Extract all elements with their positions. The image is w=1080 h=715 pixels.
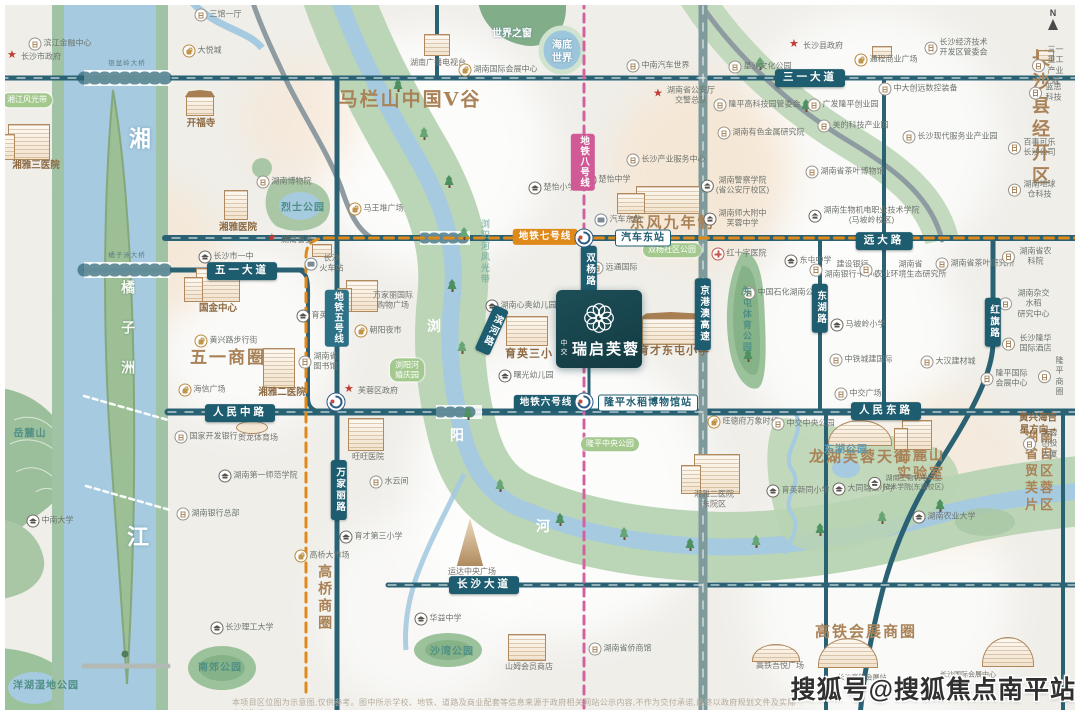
map-label-text: 湖南警察学院 (省公安厅校区) xyxy=(716,176,769,197)
map-label-text: 朝阳夜市 xyxy=(370,326,402,336)
school-icon xyxy=(415,613,428,626)
shopping-icon xyxy=(295,550,308,563)
map-label-text: 旺德府万象时代 xyxy=(723,417,779,427)
map-label-text: 阳 xyxy=(450,427,464,445)
map-label: 浏阳河 婚庆园 xyxy=(390,358,424,381)
map-label: 长沙理工大学 xyxy=(211,622,274,635)
building-icon xyxy=(772,418,785,431)
map-label-text: 湖南地球仓科技 xyxy=(1023,180,1056,201)
map-label-text: 高铁会展商圈 xyxy=(815,622,917,642)
map-label-text: 湘 xyxy=(129,126,151,155)
shopping-icon xyxy=(459,64,472,77)
map-label-text: 湘江风光带 xyxy=(7,95,47,105)
building-icon xyxy=(818,120,831,133)
map-label-text: 中南大学 xyxy=(42,516,74,526)
map-label: 长沙经济技术 开发区管委会 xyxy=(925,38,988,59)
map-label: 贺龙体育场 xyxy=(238,433,278,443)
map-label-text: 红旗路 xyxy=(987,305,999,340)
map-label-text: 五一大道 xyxy=(215,264,269,278)
map-label: 湖南杂交水稻 研究中心 xyxy=(999,288,1053,319)
map-label: 南郊公园 xyxy=(198,662,242,675)
gov-star-icon xyxy=(344,385,356,397)
map-label-text: 湖南省侨商馆 xyxy=(604,644,652,654)
map-label-text: 银盆岭大桥 xyxy=(108,60,146,68)
map-label: 海底 世界 xyxy=(552,39,572,65)
map-label-text: 汽车东站 xyxy=(621,232,665,245)
map-label-text: 湖南省委 xyxy=(281,235,313,245)
map-label: 隆平中央公园 xyxy=(581,437,639,451)
map-label-text: 中南汽车世界 xyxy=(642,61,690,71)
building-illustration xyxy=(224,190,248,220)
map-label-text: 长沙县政府 xyxy=(803,41,843,51)
building-illustration xyxy=(508,634,546,661)
school-icon xyxy=(701,180,714,193)
school-icon xyxy=(868,477,881,490)
map-label: 万家丽国际 购物广场 xyxy=(373,291,413,312)
map-label-text: 马王堆广场 xyxy=(364,204,404,214)
building-illustration xyxy=(636,186,700,214)
map-label-text: 远通国际 xyxy=(606,263,638,273)
map-label-text: 浏阳河风光带 xyxy=(478,219,490,285)
building-illustration xyxy=(902,420,932,450)
hospital-icon xyxy=(712,248,725,261)
map-label-text: 东湖路 xyxy=(814,291,826,326)
shopping-icon xyxy=(355,325,368,338)
school-icon xyxy=(785,255,798,268)
map-label-text: 百事可乐长沙公司 xyxy=(1023,138,1056,159)
building-icon xyxy=(1002,338,1015,351)
map-label-text: 东屯体育公园 xyxy=(740,287,752,353)
compass-n: N xyxy=(1050,8,1057,18)
map-label: 湘雅二医院 xyxy=(258,387,306,399)
train-icon xyxy=(305,258,318,271)
map-label: 长沙大道 xyxy=(449,576,519,594)
building-illustration xyxy=(263,348,295,388)
map-label: 京港澳高速 xyxy=(695,278,711,350)
map-label-text: 长沙隆华国际酒店 xyxy=(1017,334,1054,355)
map-label: 长沙县政府 xyxy=(789,40,843,52)
gov-star-icon xyxy=(789,40,801,52)
map-label-text: 地铁六号线 xyxy=(520,397,573,409)
tree-icon xyxy=(556,513,565,526)
shopping-icon xyxy=(855,54,868,67)
tree-icon xyxy=(445,175,454,188)
building-icon xyxy=(714,99,727,112)
map-label: 海信广场 xyxy=(179,384,226,397)
building-icon xyxy=(806,166,819,179)
map-label: 高铁会展商圈 xyxy=(815,622,917,642)
school-icon xyxy=(704,213,717,226)
map-label: 国金中心 xyxy=(199,303,237,315)
building-icon xyxy=(299,356,312,369)
map-label-text: 烈士公园 xyxy=(281,202,325,215)
map-label: 通程商业广场 xyxy=(855,54,918,67)
map-label: 黄兴路步行街 xyxy=(195,335,258,348)
map-label-text: 开福寺 xyxy=(187,118,216,130)
map-label: 隆平国际 会展中心 xyxy=(981,369,1028,390)
map-label: 国家开发银行 xyxy=(175,431,238,444)
map-label-text: 南郊公园 xyxy=(198,662,242,675)
map-label-text: 中交广场 xyxy=(850,389,882,399)
north-arrow-icon xyxy=(1048,19,1058,30)
map-label-text: 湖南师大附中 芙蓉中学 xyxy=(719,209,767,230)
map-label: 中大创远数控装备 xyxy=(879,83,958,96)
map-label-text: 长沙大道 xyxy=(457,578,511,592)
map-label-text: 山姆会员商店 xyxy=(505,662,553,672)
map-label-text: 地铁八号线 xyxy=(577,136,589,189)
map-label: 湖南地球仓科技 xyxy=(1008,180,1056,201)
map-label-text: 万家丽国际 购物广场 xyxy=(373,291,413,312)
map-label-text: 汽车东站 xyxy=(610,215,642,225)
map-label-text: 长沙市一中 xyxy=(214,252,254,262)
map-label-text: 湖南第一师范学院 xyxy=(234,471,298,481)
map-label-text: 国金中心 xyxy=(199,303,237,315)
map-label-text: 湖南银行总部 xyxy=(192,509,240,519)
map-label: 三一大道 xyxy=(775,69,845,87)
map-label-text: 楚怡中学 xyxy=(599,175,631,185)
map-label: 湖南省侨商馆 xyxy=(589,643,652,656)
shopping-icon xyxy=(179,384,192,397)
metro-logo-icon xyxy=(575,393,594,412)
metro-logo-icon xyxy=(575,229,594,248)
map-label-text: 海底 世界 xyxy=(552,39,572,65)
map-label: 红十字医院 xyxy=(712,248,767,261)
map-label-text: 黄兴海吉星方向→ xyxy=(1017,413,1059,438)
map-label: 人民中路 xyxy=(205,404,275,422)
building-illustration xyxy=(424,34,450,56)
map-label-text: 湖南杂交水稻 研究中心 xyxy=(1014,288,1053,319)
map-label: 湖南警察学院 (省公安厅校区) xyxy=(701,176,769,197)
tree-icon xyxy=(460,227,469,240)
building-icon xyxy=(903,131,916,144)
map-label-text: 长沙市政府 xyxy=(21,52,61,62)
map-label-text: 湘雅三医院 xyxy=(12,160,60,172)
tree-icon xyxy=(878,511,887,524)
map-label: 世界之窗 xyxy=(492,28,532,41)
map-label: 汽车东站 xyxy=(595,214,642,227)
building-icon xyxy=(1032,60,1045,73)
map-label-text: 水云间 xyxy=(385,477,409,487)
building-icon xyxy=(370,476,383,489)
building-illustration xyxy=(348,418,384,451)
building-illustration xyxy=(8,124,50,160)
map-label: 湖南省农科院 xyxy=(1002,247,1054,268)
map-label-text: 洋湖湿地公园 xyxy=(13,680,79,693)
building-icon xyxy=(195,9,208,22)
map-label: 远通国际 xyxy=(591,262,638,275)
map-label-text: 人民东路 xyxy=(859,404,913,418)
map-label: 地铁五号线 xyxy=(325,290,349,347)
tree-icon xyxy=(420,127,429,140)
map-label: 烈士公园 xyxy=(281,202,325,215)
map-label: 湘 xyxy=(129,126,151,155)
map-label: 地铁六号线 xyxy=(514,395,579,411)
map-label: 中南大学 xyxy=(27,515,74,528)
map-label: 地铁七号线 xyxy=(513,229,578,245)
map-label-text: 湖南省茶叶博物馆 xyxy=(821,167,885,177)
map-label: 湖南省 图书馆 xyxy=(299,352,338,373)
map-label: 朝阳夜市 xyxy=(355,325,402,338)
map-label-text: 橘子洲 xyxy=(118,280,136,400)
map-label-text: 长沙经济技术 开发区管委会 xyxy=(940,38,988,59)
map-label-text: 浏阳河 婚庆园 xyxy=(395,360,419,379)
map-label: 湘雅三医院 xyxy=(12,160,60,172)
building-icon xyxy=(177,508,190,521)
map-label: 洋湖湿地公园 xyxy=(13,680,79,693)
building-icon xyxy=(1002,251,1015,264)
tree-icon xyxy=(496,479,505,492)
map-label-text: 曙光幼儿园 xyxy=(514,371,554,381)
map-label: 湖南省委 xyxy=(267,234,313,246)
map-label: 人民东路 xyxy=(851,402,921,420)
school-icon xyxy=(913,511,926,524)
map-label-text: 湘雅二医院 东院区 xyxy=(694,490,734,511)
map-label-text: 沙湾公园 xyxy=(430,646,474,659)
map-label-text: 长沙 火车站 xyxy=(320,254,344,275)
school-icon xyxy=(297,310,310,323)
map-label: 湖南农业大学 xyxy=(913,511,976,524)
building-icon xyxy=(860,264,873,277)
map-label: 马坡岭小学 xyxy=(831,319,886,332)
map-label: 地铁八号线 xyxy=(571,134,595,191)
compass: N xyxy=(1048,8,1058,30)
map-label: 湖南国际会展中心 xyxy=(459,64,538,77)
map-label: 中交广场 xyxy=(835,388,882,401)
map-label-text: 地铁七号线 xyxy=(519,231,572,243)
map-label-text: 育才第三小学 xyxy=(355,532,403,542)
map-label-text: 华益中学 xyxy=(430,614,462,624)
map-label: 大汉建材城 xyxy=(921,356,976,369)
map-label-text: 马栏山中国V谷 xyxy=(339,88,482,113)
map-label: 百事可乐长沙公司 xyxy=(1008,138,1056,159)
watermark: 搜狐号@搜狐焦点南平站 xyxy=(791,670,1076,706)
map-label: 银盆岭大桥 xyxy=(108,60,146,68)
map-label-text: 五一商圈 xyxy=(190,347,266,369)
map-label-text: 三一大道 xyxy=(783,71,837,85)
building-icon xyxy=(729,61,742,74)
map-label: 长沙 火车站 xyxy=(305,254,344,275)
building-icon xyxy=(925,42,938,55)
map-label-text: 通程商业广场 xyxy=(870,55,918,65)
tree-icon xyxy=(620,527,629,540)
building-icon xyxy=(718,127,731,140)
map-label-text: 三馆一厅 xyxy=(210,10,242,20)
map-label: 河 xyxy=(536,518,550,536)
map-label-text: 高桥大市场 xyxy=(310,551,350,561)
map-label-text: 湖南有色金属研究院 xyxy=(733,128,805,138)
map-label-text: 浏 xyxy=(427,318,441,336)
map-label-text: 人民中路 xyxy=(213,406,267,420)
building-icon xyxy=(1023,437,1036,450)
map-label: 湖南有色金属研究院 xyxy=(718,127,805,140)
map-label: 隆平商圈 xyxy=(1038,356,1066,398)
building-icon xyxy=(627,60,640,73)
map-label: 美的科技产业园 xyxy=(818,120,889,133)
shopping-icon xyxy=(195,335,208,348)
project-name: 瑞启芙蓉 xyxy=(572,338,640,359)
map-label-text: 育英新同小学 xyxy=(782,486,830,496)
map-label: 沙湾公园 xyxy=(430,646,474,659)
map-label: 浏阳河风光带 xyxy=(478,219,490,285)
map-label-text: 长沙现代服务业产业园 xyxy=(918,132,998,142)
gov-star-icon xyxy=(7,51,19,63)
map-label: 中铁城建国际 xyxy=(830,354,893,367)
map-label: 三馆一厅 xyxy=(195,9,242,22)
map-label: 湖南博物院 xyxy=(257,176,312,189)
map-label: 东湖路 xyxy=(812,284,828,333)
camellia-flower-icon xyxy=(581,300,617,336)
tree-icon xyxy=(752,535,761,548)
map-label: 蓝思科技 xyxy=(1029,83,1063,104)
gov-star-icon xyxy=(267,234,279,246)
metro-logo-icon xyxy=(327,393,346,412)
map-label-text: 双杨路 xyxy=(583,253,595,288)
building-icon xyxy=(1029,87,1042,100)
map-label-text: 长沙理工大学 xyxy=(226,623,274,633)
map-label-text: 湖南省公安厅 交警总队 xyxy=(667,86,715,107)
map-label: 广发隆平创业园 xyxy=(808,99,879,112)
map-label-text: 马坡岭小学 xyxy=(846,320,886,330)
building-icon xyxy=(1038,371,1051,384)
map-canvas: 中交 瑞启芙蓉 N 搜狐号@搜狐焦点南平站 本项目区位图为示意图,仅供参考。图中… xyxy=(0,0,1080,715)
map-label-text: 湖南省 图书馆 xyxy=(314,352,338,373)
map-label-text: 湘雅二医院 xyxy=(258,387,306,399)
map-label-text: 远大路 xyxy=(864,234,905,248)
map-label-text: 江 xyxy=(127,524,149,553)
building-icon xyxy=(175,431,188,444)
map-label: 双杨路 xyxy=(581,246,597,295)
map-label: 五一商圈 xyxy=(190,347,266,369)
tree-icon xyxy=(448,279,457,292)
school-icon xyxy=(219,470,232,483)
school-icon xyxy=(211,622,224,635)
map-label-text: 隆平水稻博物馆站 xyxy=(604,397,692,410)
building-illustration xyxy=(642,318,700,345)
map-label: 橘子洲 xyxy=(118,280,136,400)
tree-icon xyxy=(394,79,403,92)
map-label-text: 中交中央公园 xyxy=(787,419,835,429)
map-label: 阳 xyxy=(450,427,464,445)
map-label: 曙光幼儿园 xyxy=(499,370,554,383)
map-label: 滨江金融中心 xyxy=(29,38,92,51)
building-illustration xyxy=(186,96,214,116)
map-label-text: 红十字医院 xyxy=(727,249,767,259)
school-icon xyxy=(833,483,846,496)
map-label-text: 东湖公园 xyxy=(824,444,868,457)
map-label: 长沙市政府 xyxy=(7,51,61,63)
map-label: 万家丽路 xyxy=(331,460,347,520)
map-label: 育英三小 xyxy=(505,347,553,361)
disclaimer-text: 本项目区位图为示意图,仅供参考。图中所示学校、地铁、道路及商业配套等信息来源于政… xyxy=(232,697,802,715)
map-label-text: 中铁城建国际 xyxy=(845,355,893,365)
map-label: 湘雅医院 xyxy=(219,222,257,234)
map-label-text: 双杨社区公园 xyxy=(648,245,696,255)
shopping-icon xyxy=(183,45,196,58)
map-label: 华益中学 xyxy=(415,613,462,626)
shopping-icon xyxy=(708,416,721,429)
map-label: 湘江风光带 xyxy=(2,93,52,107)
tree-icon xyxy=(464,407,473,420)
map-label: 育英新同小学 xyxy=(767,485,830,498)
map-label-text: 岳麓山 xyxy=(14,428,47,441)
school-icon xyxy=(340,531,353,544)
map-label: 长沙产业服务中心 xyxy=(627,154,706,167)
map-label: 湖南省公安厅 交警总队 xyxy=(653,86,715,107)
map-label-text: 中大创远数控装备 xyxy=(894,84,958,94)
map-label: 岳麓山 xyxy=(14,428,47,441)
school-icon xyxy=(767,485,780,498)
map-label: 远大路 xyxy=(856,232,913,250)
building-icon xyxy=(589,643,602,656)
building-icon xyxy=(1008,142,1021,155)
map-label-text: 海信广场 xyxy=(194,385,226,395)
map-label-text: 湖南农业大学 xyxy=(928,512,976,522)
map-label: 黄兴海吉星方向→ xyxy=(1017,413,1059,438)
map-label: 五一大道 xyxy=(207,262,277,280)
map-label-text: 蓝思科技 xyxy=(1044,83,1063,104)
building-icon xyxy=(879,83,892,96)
map-label: 隆平水稻博物馆站 xyxy=(598,395,698,412)
map-label-text: 地铁五号线 xyxy=(331,292,343,345)
map-label: 江 xyxy=(127,524,149,553)
map-label: 东湖公园 xyxy=(824,444,868,457)
map-label-text: 隆平商圈 xyxy=(1053,356,1066,398)
building-icon xyxy=(1008,184,1021,197)
gov-star-icon xyxy=(653,90,665,102)
school-icon xyxy=(831,319,844,332)
map-label-text: 湖南博物院 xyxy=(272,177,312,187)
map-label-text: 隆平国际 会展中心 xyxy=(996,369,1028,390)
building-icon xyxy=(29,38,42,51)
building-icon xyxy=(627,154,640,167)
map-label: 高桥商圈 xyxy=(315,564,333,632)
map-label-text: 芙蓉区政府 xyxy=(358,386,398,396)
map-label-text: 美的科技产业园 xyxy=(833,121,889,131)
map-label: 大悦城 xyxy=(183,45,222,58)
school-icon xyxy=(529,182,542,195)
building-icon xyxy=(808,99,821,112)
project-brand: 中交 xyxy=(558,339,568,357)
building-icon xyxy=(936,258,949,271)
school-icon xyxy=(809,210,822,223)
map-label-text: 高桥商圈 xyxy=(315,564,333,632)
map-label: 湖南省茶叶博物馆 xyxy=(806,166,885,179)
school-icon xyxy=(27,515,40,528)
bus-icon xyxy=(595,214,608,227)
map-label: 马栏山中国V谷 xyxy=(339,88,482,113)
tree-icon xyxy=(458,341,467,354)
map-label-text: 长沙产业服务中心 xyxy=(642,155,706,165)
map-label-text: 京港澳高速 xyxy=(697,285,709,343)
map-label: 马王堆广场 xyxy=(349,203,404,216)
map-label-text: 湖南生物机电职业技术学院 (马坡岭校区) xyxy=(824,206,920,227)
map-label: 旺德府万象时代 xyxy=(708,416,779,429)
map-label: 湖南银行总部 xyxy=(177,508,240,521)
map-label-text: 国家开发银行 xyxy=(190,432,238,442)
map-label: 湖南生物机电职业 技术学院(东湖校区) xyxy=(868,474,944,492)
map-label-text: 大悦城 xyxy=(198,46,222,56)
building-icon xyxy=(981,373,994,386)
map-label-text: 河 xyxy=(536,518,550,536)
map-label-text: 世界之窗 xyxy=(492,28,532,41)
map-label: 红旗路 xyxy=(985,298,1001,347)
building-illustration xyxy=(694,454,740,494)
project-logo-card: 中交 瑞启芙蓉 xyxy=(556,290,642,368)
map-label-text: 隆平高科技园管委会 xyxy=(729,100,801,110)
map-label-text: 育英三小 xyxy=(505,347,553,361)
building-icon xyxy=(835,388,848,401)
tree-icon xyxy=(686,538,695,551)
